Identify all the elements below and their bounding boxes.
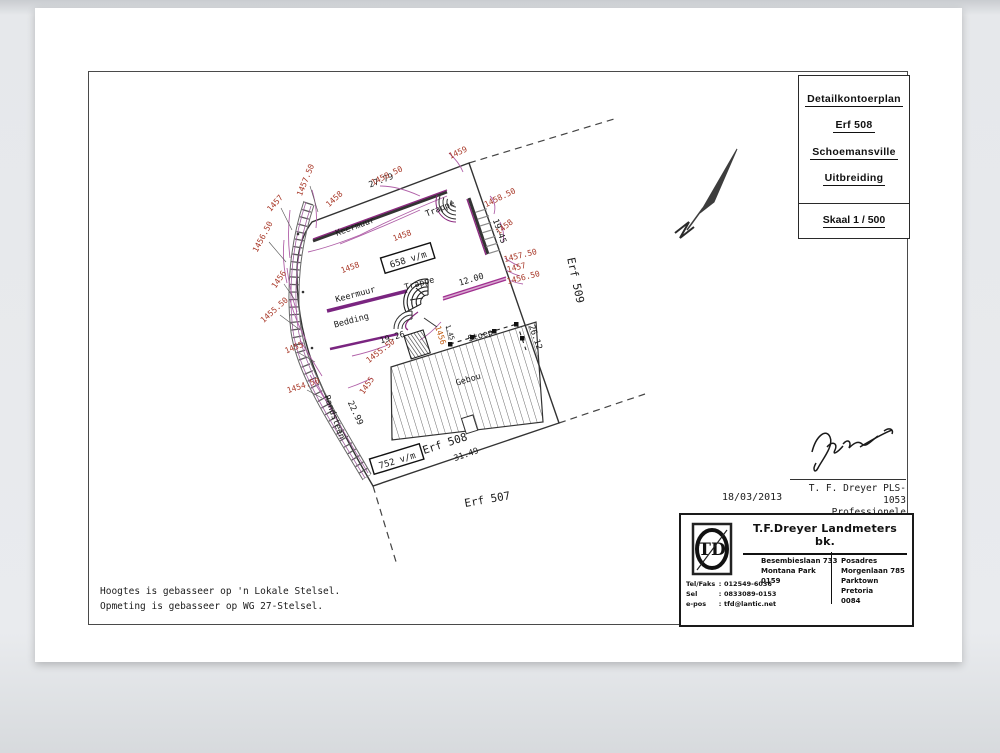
signature-date: 18/03/2013 bbox=[722, 492, 782, 503]
contact-row: e-pos : tfd@lantic.net bbox=[686, 599, 776, 609]
contour-label: 1456.50 bbox=[251, 220, 275, 254]
scale-row: Skaal 1 / 500 bbox=[799, 203, 909, 238]
contact-label: Tel/Faks bbox=[686, 579, 716, 589]
note-line: Opmeting is gebasseer op WG 27-Stelsel. bbox=[100, 599, 340, 614]
survey-notes: Hoogtes is gebasseer op 'n Lokale Stelse… bbox=[100, 584, 340, 614]
postal-line: Posadres bbox=[841, 556, 912, 566]
contour-label: 1454.50 bbox=[286, 376, 321, 395]
plan-title: Detailkontoerplan bbox=[805, 93, 903, 107]
surveyor-name: T. F. Dreyer PLS-1053 bbox=[790, 483, 906, 507]
contour-label: 1458 bbox=[392, 228, 413, 243]
postal-line: Morgenlaan 785 bbox=[841, 566, 912, 576]
company-logo-icon: TD bbox=[691, 522, 733, 578]
contact-separator: : bbox=[716, 589, 724, 599]
postal-address: Posadres Morgenlaan 785 Parktown Pretori… bbox=[841, 556, 912, 606]
contour-label: 1458 bbox=[340, 260, 361, 275]
erf-507-label: Erf 507 bbox=[463, 489, 511, 510]
randsteen-label: Randsteen bbox=[321, 394, 346, 441]
contour-label: 1455 bbox=[283, 340, 304, 356]
contact-row: Tel/Faks : 012549-6036 bbox=[686, 579, 776, 589]
contour-label: 1455 bbox=[358, 375, 377, 396]
north-arrow-icon bbox=[675, 149, 737, 238]
company-box: TD T.F.Dreyer Landmeters bk. Besembiesla… bbox=[679, 513, 914, 627]
trappe-top-label: Trappe bbox=[424, 199, 456, 220]
office-line: Besembieslaan 733 bbox=[761, 556, 838, 566]
bedding-label: Bedding bbox=[333, 312, 370, 331]
company-name: T.F.Dreyer Landmeters bk. bbox=[743, 522, 907, 555]
contact-value: 0833089-0153 bbox=[724, 589, 776, 599]
trappe-mid-label: Trappe bbox=[403, 275, 435, 293]
contact-label: Sel bbox=[686, 589, 716, 599]
contour-label: 1459 bbox=[447, 145, 468, 161]
scanned-survey-photo: 658 v/m 752 v/m Erf 508 Erf 507 Erf 509 … bbox=[0, 0, 1000, 753]
contact-value: 012549-6036 bbox=[724, 579, 772, 589]
contact-label: e-pos bbox=[686, 599, 716, 609]
erf-number: Erf 508 bbox=[833, 119, 874, 133]
dim-left: 22.99 bbox=[345, 399, 365, 426]
contour-label: 1456 bbox=[270, 269, 289, 290]
contact-list: Tel/Faks : 012549-6036 Sel : 0833089-015… bbox=[686, 579, 776, 609]
area-box-upper: 658 v/m bbox=[381, 243, 435, 274]
office-line: Montana Park bbox=[761, 566, 838, 576]
keermuur-top-label: Keermuur bbox=[334, 215, 376, 238]
postal-line: 0084 bbox=[841, 596, 912, 606]
contact-separator: : bbox=[716, 579, 724, 589]
contact-value: tfd@lantic.net bbox=[724, 599, 776, 609]
dim-bottom: 31.49 bbox=[453, 446, 480, 464]
postal-line: Parktown Pretoria bbox=[841, 576, 912, 596]
contour-label: 1458 bbox=[324, 189, 344, 209]
contour-label: 1458.50 bbox=[483, 186, 517, 209]
title-block: Detailkontoerplan Erf 508 Schoemansville… bbox=[798, 75, 910, 239]
extension: Uitbreiding bbox=[823, 172, 886, 186]
contact-row: Sel : 0833089-0153 bbox=[686, 589, 776, 599]
area-box-lower: 752 v/m bbox=[370, 444, 424, 475]
title-block-main: Detailkontoerplan Erf 508 Schoemansville… bbox=[799, 76, 909, 203]
contour-label: 1455.50 bbox=[259, 295, 290, 324]
signature-icon bbox=[812, 429, 892, 471]
contact-separator: : bbox=[716, 599, 724, 609]
township: Schoemansville bbox=[810, 146, 898, 160]
scale-label: Skaal 1 / 500 bbox=[823, 214, 885, 228]
erf-509-label: Erf 509 bbox=[564, 256, 586, 304]
note-line: Hoogtes is gebasseer op 'n Lokale Stelse… bbox=[100, 584, 340, 599]
